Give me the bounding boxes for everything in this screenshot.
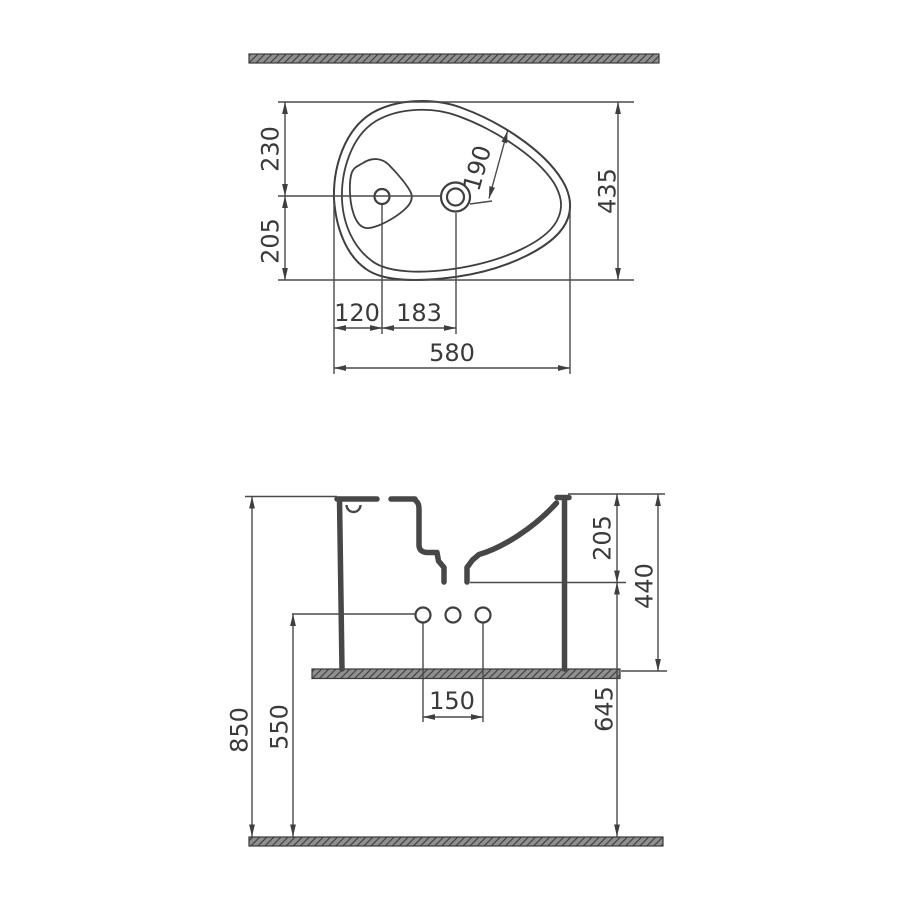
side-view: 205 440 645 850 550 150 (225, 494, 667, 846)
dim-label-183: 183 (396, 299, 442, 327)
technical-drawing-page: 230 205 190 435 120 183 580 (0, 0, 900, 900)
dim-label-190: 190 (458, 142, 498, 194)
bowl-left-and-drain-trap-section (416, 501, 444, 582)
dim-label-150: 150 (429, 687, 475, 715)
dim-label-850: 850 (225, 707, 253, 753)
dim-label-550: 550 (265, 704, 293, 750)
dim-label-230: 230 (256, 126, 284, 172)
extension-tick-faucet-diagonal (470, 201, 492, 204)
dim-label-205-top-view: 205 (256, 218, 284, 264)
mounting-hole-2 (446, 608, 461, 623)
top-view: 230 205 190 435 120 183 580 (249, 54, 659, 374)
drain-trap-right-and-bowl-curve-section (467, 503, 557, 582)
drawing-svg: 230 205 190 435 120 183 580 (0, 0, 900, 900)
basin-left-wall-section (340, 499, 343, 669)
dim-label-440: 440 (630, 563, 658, 609)
faucet-hole-inner (447, 189, 464, 206)
wall-section-bar (249, 54, 659, 63)
floor-bar (249, 837, 663, 846)
dim-label-580: 580 (429, 339, 475, 367)
counter-bar (312, 669, 620, 679)
dim-label-645: 645 (590, 686, 618, 732)
mounting-hole-3 (476, 608, 491, 623)
mounting-hole-1 (416, 608, 431, 623)
dim-label-120: 120 (334, 299, 380, 327)
dim-label-205-side-view: 205 (588, 515, 616, 561)
dim-label-435: 435 (593, 168, 621, 214)
